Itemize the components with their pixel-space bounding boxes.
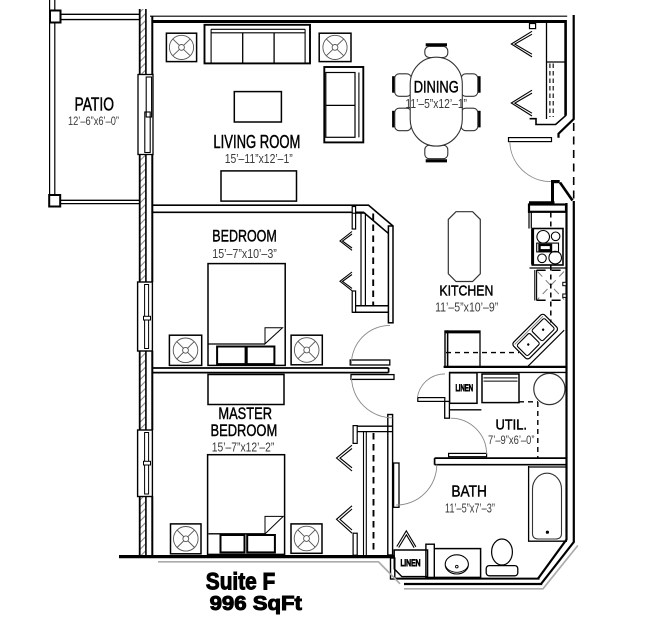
svg-text:BATH: BATH xyxy=(451,483,487,500)
svg-text:PATIO: PATIO xyxy=(75,95,115,115)
svg-text:KITCHEN: KITCHEN xyxy=(439,283,493,300)
svg-text:LINEN: LINEN xyxy=(401,558,421,568)
svg-text:MASTER: MASTER xyxy=(218,404,272,423)
svg-text:11’–5”x10’–9”: 11’–5”x10’–9” xyxy=(435,300,498,314)
svg-text:996 SqFt: 996 SqFt xyxy=(210,592,302,615)
svg-text:15’–7”x10’–3”: 15’–7”x10’–3” xyxy=(212,247,276,261)
svg-text:15’–11”x12’–1”: 15’–11”x12’–1” xyxy=(225,152,293,166)
svg-text:BEDROOM: BEDROOM xyxy=(212,226,276,245)
svg-text:12’–6”x6’–0”: 12’–6”x6’–0” xyxy=(68,116,119,128)
svg-text:LINEN: LINEN xyxy=(456,383,474,393)
svg-text:LIVING ROOM: LIVING ROOM xyxy=(213,132,300,152)
svg-text:15’–7”x12’–2”: 15’–7”x12’–2” xyxy=(212,440,274,454)
svg-text:UTIL.: UTIL. xyxy=(496,417,528,434)
svg-text:11’–5”x7’–3”: 11’–5”x7’–3” xyxy=(445,501,495,515)
svg-text:7’–9”x6’–0”: 7’–9”x6’–0” xyxy=(488,433,535,447)
svg-text:11’–5”x12’–1”: 11’–5”x12’–1” xyxy=(405,97,467,111)
svg-text:BEDROOM: BEDROOM xyxy=(211,421,278,440)
svg-text:DINING: DINING xyxy=(414,79,459,97)
